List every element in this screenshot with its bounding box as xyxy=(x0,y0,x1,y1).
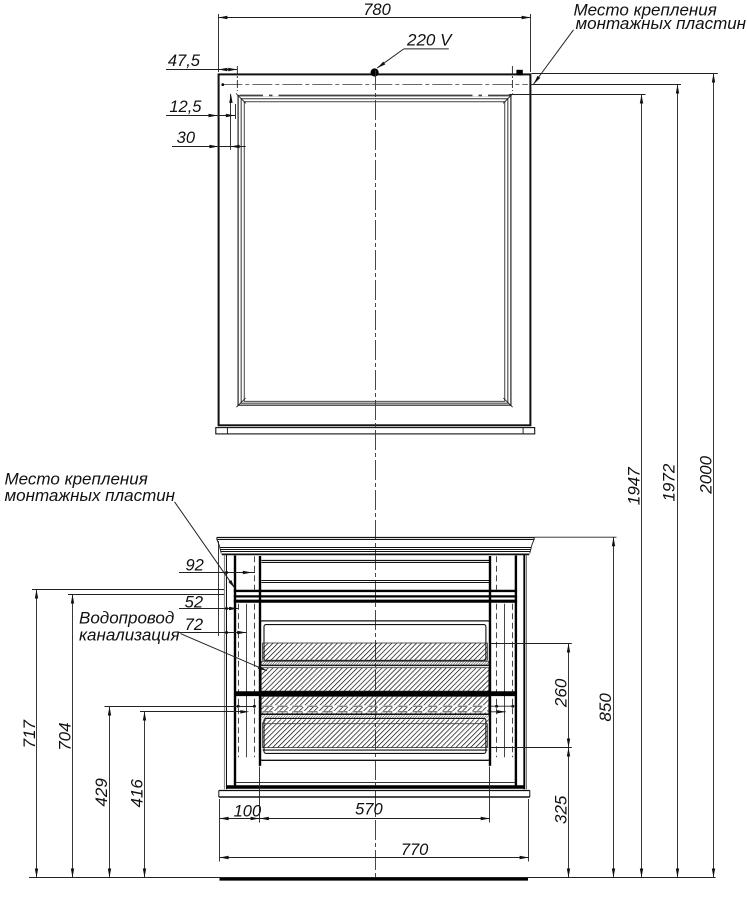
svg-text:12,5: 12,5 xyxy=(169,98,202,116)
svg-text:Водопровод: Водопровод xyxy=(79,608,174,627)
svg-text:100: 100 xyxy=(234,802,262,820)
svg-text:монтажных пластин: монтажных пластин xyxy=(5,486,176,505)
svg-text:52: 52 xyxy=(185,594,203,612)
svg-text:704: 704 xyxy=(56,722,75,750)
svg-text:2000: 2000 xyxy=(697,455,716,494)
svg-text:260: 260 xyxy=(552,678,571,708)
svg-text:220 V: 220 V xyxy=(406,31,453,50)
svg-text:570: 570 xyxy=(355,800,383,818)
svg-text:1972: 1972 xyxy=(660,463,679,501)
svg-text:325: 325 xyxy=(552,795,571,824)
svg-text:30: 30 xyxy=(177,129,196,147)
svg-text:770: 770 xyxy=(401,841,429,859)
svg-text:канализация: канализация xyxy=(79,626,180,645)
svg-text:717: 717 xyxy=(20,719,39,748)
svg-text:монтажных пластин: монтажных пластин xyxy=(576,14,747,33)
svg-text:416: 416 xyxy=(128,779,147,808)
svg-text:47,5: 47,5 xyxy=(168,52,201,70)
svg-text:780: 780 xyxy=(363,1,391,19)
svg-text:429: 429 xyxy=(92,778,111,807)
svg-text:850: 850 xyxy=(596,693,615,722)
svg-text:72: 72 xyxy=(185,616,203,634)
svg-text:1947: 1947 xyxy=(625,467,644,505)
svg-text:92: 92 xyxy=(185,556,203,574)
